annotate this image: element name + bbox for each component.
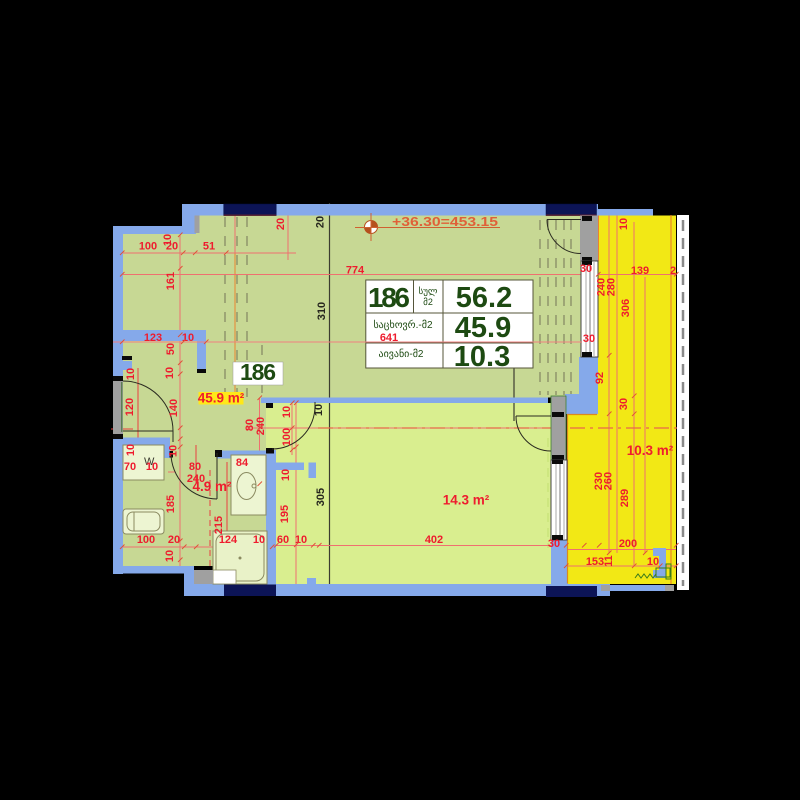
svg-text:10: 10 (253, 534, 265, 546)
svg-text:20: 20 (315, 216, 327, 228)
svg-text:10: 10 (313, 404, 325, 416)
svg-text:139: 139 (631, 265, 649, 277)
svg-text:310: 310 (316, 302, 328, 320)
svg-text:10: 10 (162, 234, 174, 246)
svg-text:240: 240 (187, 473, 205, 485)
svg-text:186: 186 (368, 282, 410, 313)
svg-text:260: 260 (603, 472, 615, 490)
svg-text:45.9 m²: 45.9 m² (198, 391, 245, 406)
svg-text:10: 10 (125, 444, 137, 456)
svg-text:30: 30 (580, 263, 592, 275)
svg-text:10: 10 (125, 368, 137, 380)
svg-text:45.9: 45.9 (455, 312, 511, 344)
svg-text:186: 186 (240, 359, 276, 385)
svg-text:185: 185 (165, 495, 177, 513)
svg-text:51: 51 (203, 241, 215, 253)
svg-text:მ2: მ2 (423, 297, 433, 307)
svg-text:56.2: 56.2 (456, 282, 512, 314)
svg-text:სულ: სულ (419, 286, 438, 297)
svg-text:60: 60 (277, 534, 289, 546)
svg-text:10: 10 (146, 461, 158, 473)
svg-text:100: 100 (281, 428, 293, 446)
svg-text:30: 30 (548, 538, 560, 550)
svg-text:215: 215 (213, 516, 225, 534)
svg-text:10: 10 (280, 469, 292, 481)
svg-text:50: 50 (165, 343, 177, 355)
svg-text:124: 124 (219, 534, 238, 546)
svg-text:10: 10 (164, 367, 176, 379)
svg-text:80: 80 (189, 461, 201, 473)
svg-text:20: 20 (275, 218, 287, 230)
svg-text:საცხოვრ.-მ2: საცხოვრ.-მ2 (373, 319, 433, 331)
svg-text:30: 30 (618, 398, 630, 410)
svg-text:70: 70 (124, 461, 136, 473)
svg-text:30: 30 (583, 333, 595, 345)
svg-text:153: 153 (586, 556, 604, 568)
svg-text:280: 280 (606, 278, 618, 296)
svg-text:100: 100 (139, 241, 157, 253)
svg-text:10.3 m²: 10.3 m² (627, 443, 674, 458)
svg-text:10.3: 10.3 (454, 341, 510, 373)
svg-text:10: 10 (164, 550, 176, 562)
svg-text:289: 289 (619, 489, 631, 507)
svg-text:10: 10 (281, 406, 293, 418)
svg-text:10: 10 (168, 445, 180, 457)
svg-text:120: 120 (124, 398, 136, 416)
svg-text:+36.30=453.15: +36.30=453.15 (392, 214, 498, 229)
svg-text:161: 161 (165, 272, 177, 290)
svg-text:140: 140 (168, 399, 180, 417)
svg-text:306: 306 (620, 299, 632, 317)
svg-text:10: 10 (647, 556, 659, 568)
svg-text:14.3 m²: 14.3 m² (443, 493, 490, 508)
svg-text:84: 84 (236, 457, 249, 469)
svg-text:20: 20 (168, 534, 180, 546)
svg-text:200: 200 (619, 538, 637, 550)
svg-text:305: 305 (315, 488, 327, 506)
svg-text:10: 10 (618, 218, 630, 230)
svg-text:92: 92 (594, 372, 606, 384)
svg-text:195: 195 (279, 505, 291, 523)
svg-text:100: 100 (137, 534, 155, 546)
svg-text:აივანი-მ2: აივანი-მ2 (379, 348, 424, 360)
svg-text:11: 11 (603, 555, 615, 567)
svg-text:402: 402 (425, 534, 443, 546)
svg-text:774: 774 (346, 265, 365, 277)
